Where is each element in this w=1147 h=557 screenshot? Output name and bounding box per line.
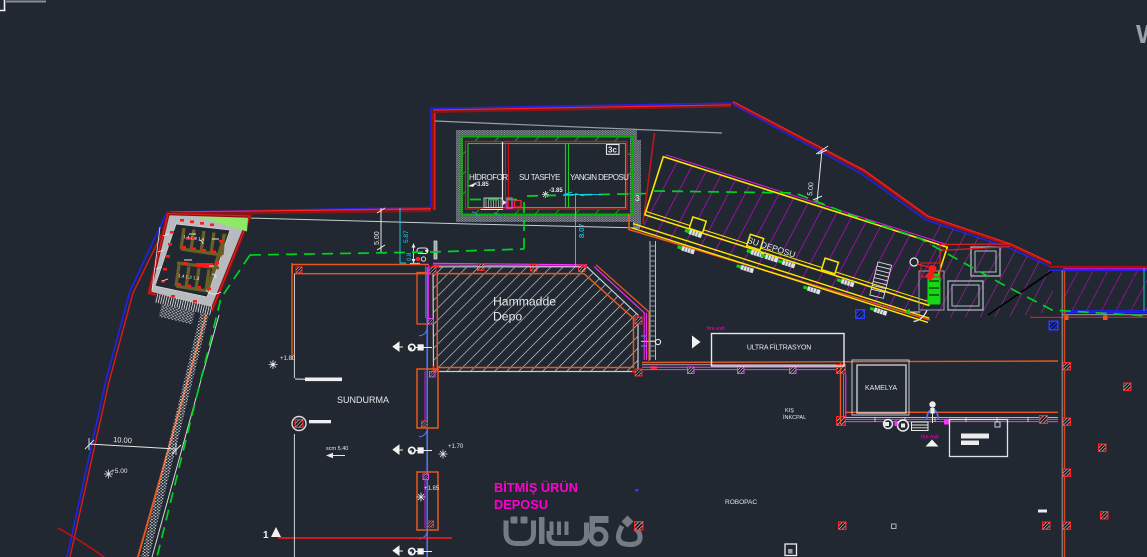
svg-text:fire exit: fire exit: [921, 435, 939, 441]
svg-text:+5.00: +5.00: [111, 468, 128, 475]
svg-text:Depo: Depo: [493, 310, 522, 324]
svg-text:İNKCPAL: İNKCPAL: [783, 414, 806, 421]
svg-text:1: 1: [263, 530, 269, 541]
svg-text:-3.85: -3.85: [475, 182, 489, 188]
svg-text:BİTMİŞ ÜRÜN: BİTMİŞ ÜRÜN: [494, 480, 578, 495]
svg-text:KAMELYA: KAMELYA: [865, 385, 897, 392]
svg-text:scm 5.40: scm 5.40: [326, 446, 348, 452]
svg-text:0.8: 0.8: [407, 252, 413, 261]
svg-text:SU TASFİYE: SU TASFİYE: [519, 173, 560, 182]
svg-text:5.00: 5.00: [807, 182, 815, 196]
svg-text:3c: 3c: [608, 146, 617, 155]
svg-text:YANGIN DEPOSU: YANGIN DEPOSU: [570, 173, 629, 182]
svg-text:KIŞ: KIŞ: [785, 408, 794, 414]
svg-text:10.00: 10.00: [113, 435, 132, 445]
svg-text:HİDROFOR: HİDROFOR: [469, 173, 508, 182]
svg-text:5.87: 5.87: [403, 230, 410, 243]
svg-text:+1.85: +1.85: [424, 486, 440, 492]
svg-text:+1.80: +1.80: [280, 356, 296, 362]
svg-text:8.07: 8.07: [577, 223, 586, 238]
svg-text:ROBOPAC: ROBOPAC: [725, 499, 757, 506]
svg-text:DEPOSU: DEPOSU: [494, 497, 548, 512]
svg-text:W: W: [1136, 19, 1147, 49]
svg-text:fire exit: fire exit: [707, 326, 725, 332]
svg-text:+1.70: +1.70: [448, 444, 464, 450]
svg-text:5.00: 5.00: [374, 231, 381, 245]
svg-text:SUNDURMA: SUNDURMA: [337, 395, 389, 405]
svg-text:Hammadde: Hammadde: [493, 295, 556, 309]
svg-text:ULTRA FİLTRASYON: ULTRA FİLTRASYON: [747, 343, 811, 352]
svg-text:-3.85: -3.85: [549, 188, 563, 194]
